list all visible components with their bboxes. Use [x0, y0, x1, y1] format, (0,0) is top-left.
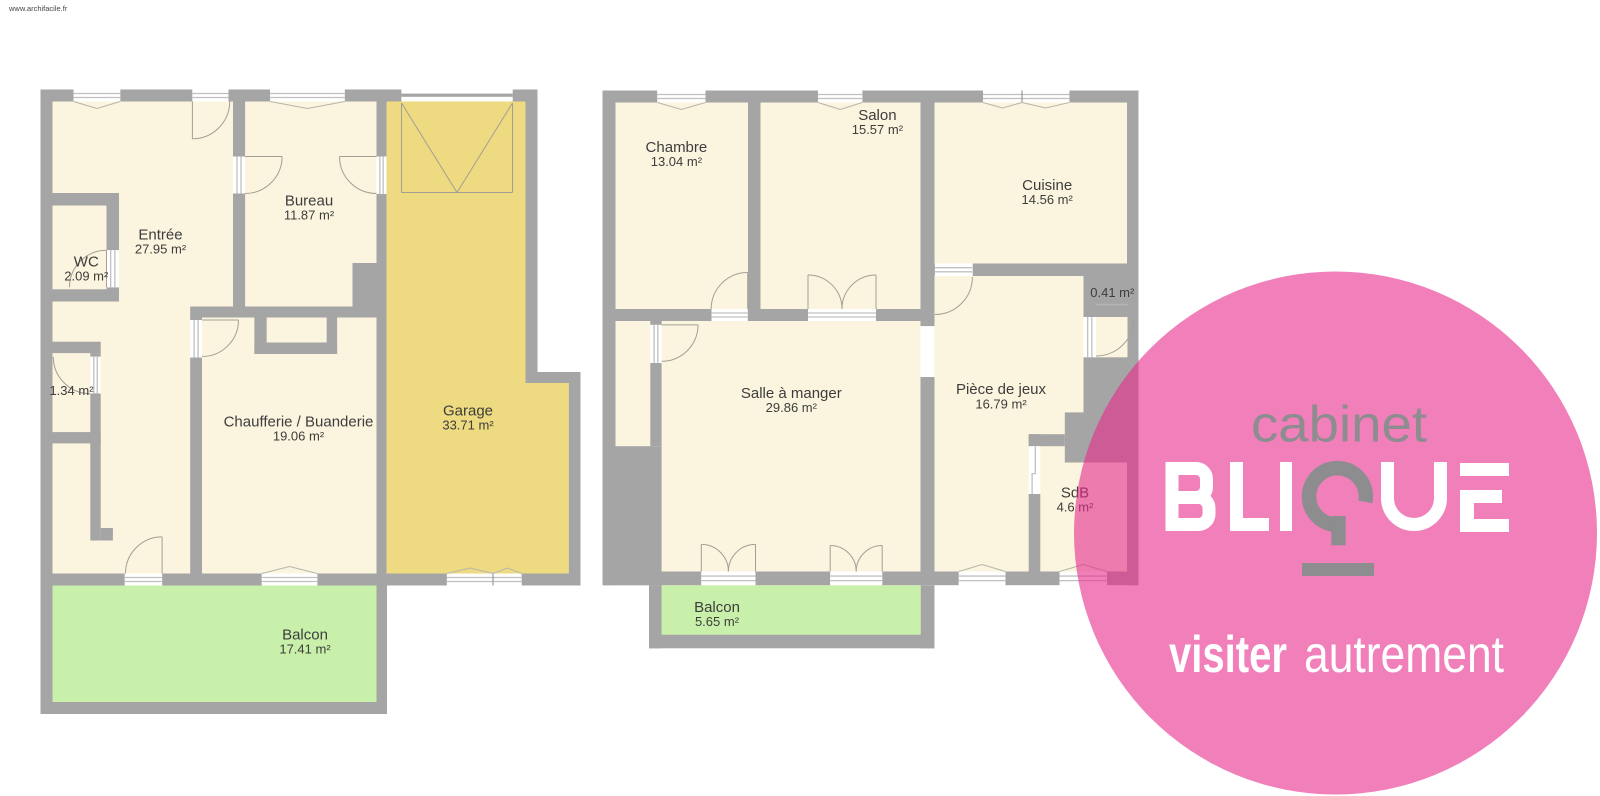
svg-text:14.56 m²: 14.56 m² [1022, 192, 1074, 207]
svg-text:15.57 m²: 15.57 m² [852, 122, 904, 137]
svg-text:5.65 m²: 5.65 m² [695, 614, 740, 629]
svg-text:29.86 m²: 29.86 m² [766, 400, 818, 415]
svg-text:2.09 m²: 2.09 m² [64, 269, 109, 284]
svg-text:visiter: visiter [1169, 626, 1287, 684]
svg-text:19.06 m²: 19.06 m² [273, 429, 325, 444]
svg-text:13.04 m²: 13.04 m² [651, 154, 703, 169]
svg-text:www.archifacile.fr: www.archifacile.fr [8, 4, 68, 13]
svg-text:0.41 m²: 0.41 m² [1090, 285, 1135, 300]
svg-text:17.41 m²: 17.41 m² [279, 642, 331, 657]
svg-text:11.87 m²: 11.87 m² [284, 208, 335, 223]
svg-text:autrement: autrement [1304, 626, 1504, 684]
svg-text:27.95 m²: 27.95 m² [135, 242, 187, 257]
svg-text:cabinet: cabinet [1251, 396, 1427, 453]
svg-text:16.79 m²: 16.79 m² [975, 397, 1027, 412]
svg-text:1.34 m²: 1.34 m² [49, 383, 94, 398]
svg-text:33.71 m²: 33.71 m² [442, 418, 494, 433]
